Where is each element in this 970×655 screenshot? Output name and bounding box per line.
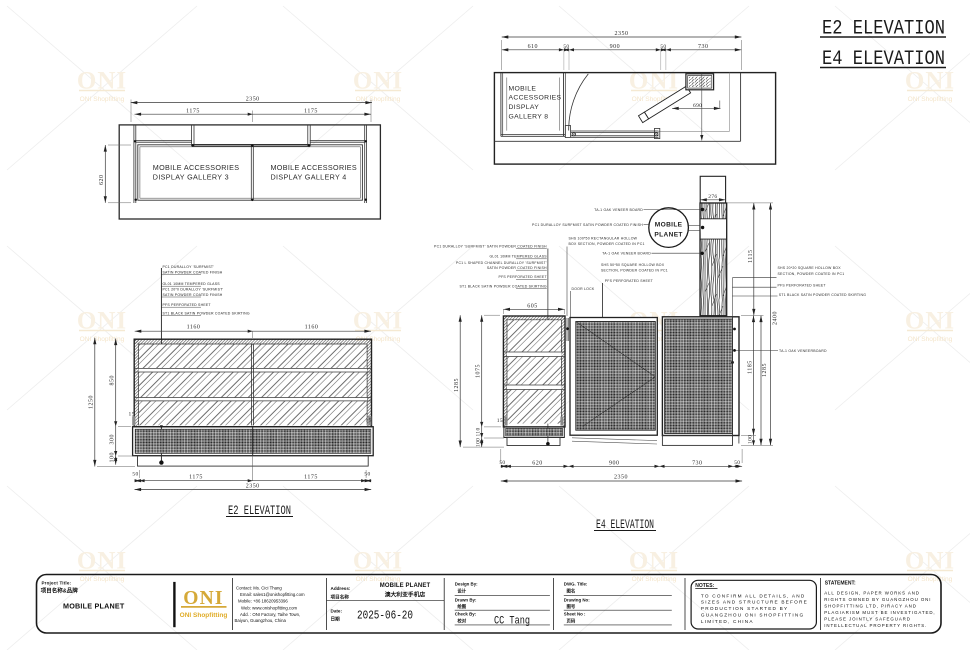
svg-text:DOOR LOCK: DOOR LOCK — [572, 287, 595, 291]
svg-text:100: 100 — [747, 435, 753, 444]
svg-text:2350: 2350 — [614, 475, 628, 481]
svg-text:Add. : ONI Factory, Taihe Tow: Add. : ONI Factory, Taihe Town, — [240, 612, 300, 617]
svg-text:15: 15 — [129, 412, 135, 418]
svg-text:ST1 BLACK SATIN POWDER COATED: ST1 BLACK SATIN POWDER COATED SKIRTING — [459, 285, 546, 289]
svg-text:620: 620 — [99, 175, 105, 185]
svg-text:605: 605 — [527, 303, 537, 309]
svg-text:LIMITED, CHINA: LIMITED, CHINA — [701, 619, 754, 624]
svg-text:TO CONFIRM ALL DETAILS, AND: TO CONFIRM ALL DETAILS, AND — [701, 593, 806, 598]
svg-text:GALLERY 8: GALLERY 8 — [509, 114, 549, 121]
svg-text:PFS PERFORATED SHEET: PFS PERFORATED SHEET — [499, 275, 548, 279]
svg-text:E4 ELEVATION: E4 ELEVATION — [596, 517, 654, 532]
svg-text:ONI Shopfitting: ONI Shopfitting — [908, 336, 953, 343]
svg-text:NOTES:: NOTES: — [695, 583, 714, 589]
svg-text:校对: 校对 — [457, 617, 466, 624]
svg-text:1115: 1115 — [748, 250, 754, 263]
svg-text:276: 276 — [708, 194, 717, 200]
svg-text:Drawing No:: Drawing No: — [564, 598, 590, 603]
svg-text:ONI Shopfitting: ONI Shopfitting — [632, 576, 677, 583]
svg-text:50: 50 — [364, 472, 370, 478]
svg-text:ONI Shopfitting: ONI Shopfitting — [80, 576, 125, 583]
svg-text:RIGHTS OWNED BY GUANGZHOU ONI: RIGHTS OWNED BY GUANGZHOU ONI — [824, 597, 931, 602]
svg-text:Design By:: Design By: — [455, 581, 478, 586]
svg-text:SHS 20*20 SQUARE HOLLOW BOX: SHS 20*20 SQUARE HOLLOW BOX — [778, 266, 842, 270]
svg-text:页码: 页码 — [567, 617, 576, 624]
svg-text:PFS PERFORATED SHEET: PFS PERFORATED SHEET — [605, 279, 654, 283]
svg-text:BOX SECTION, POWDER COATED IN: BOX SECTION, POWDER COATED IN PC1 — [569, 242, 645, 246]
svg-text:1175: 1175 — [304, 475, 318, 481]
svg-text:Mobile: +86 18620953396: Mobile: +86 18620953396 — [238, 599, 288, 604]
svg-text:730: 730 — [698, 44, 708, 50]
svg-text:50: 50 — [734, 460, 740, 466]
svg-text:绘图: 绘图 — [457, 603, 466, 610]
svg-text:GL01 10MM TEMPERED GLASS: GL01 10MM TEMPERED GLASS — [489, 255, 547, 259]
svg-text:300: 300 — [110, 434, 116, 444]
svg-text:Address:: Address: — [331, 586, 351, 591]
svg-text:Sheet No :: Sheet No : — [564, 612, 586, 617]
svg-text:1160: 1160 — [187, 325, 201, 331]
svg-text:日期: 日期 — [331, 616, 341, 623]
svg-text:50: 50 — [499, 460, 505, 466]
svg-text:50: 50 — [563, 44, 569, 50]
svg-text:SHS 50*50 SQUARE HOLLOW BOX: SHS 50*50 SQUARE HOLLOW BOX — [601, 263, 665, 267]
svg-text:1285: 1285 — [454, 378, 460, 392]
svg-text:PLAGIARISM MUST BE INVESTIGATE: PLAGIARISM MUST BE INVESTIGATED, — [824, 610, 935, 615]
svg-text:ONI Shopfitting: ONI Shopfitting — [908, 96, 953, 103]
svg-text:50: 50 — [132, 472, 138, 478]
svg-text:Date:: Date: — [331, 609, 343, 614]
svg-text:15: 15 — [497, 418, 503, 424]
svg-text:ONI Shopfitting: ONI Shopfitting — [908, 576, 953, 583]
svg-text:PFS PERFORATED SHEET: PFS PERFORATED SHEET — [778, 284, 827, 288]
svg-text:ACCESSORIES: ACCESSORIES — [509, 95, 562, 102]
svg-text:15: 15 — [366, 418, 372, 424]
svg-text:2350: 2350 — [246, 97, 260, 103]
svg-text:MOBILE: MOBILE — [509, 85, 537, 92]
svg-text:图名: 图名 — [567, 588, 576, 595]
svg-text:100: 100 — [476, 438, 482, 447]
svg-text:SECTION, POWDER COATED IN PC1: SECTION, POWDER COATED IN PC1 — [601, 269, 668, 273]
svg-text:Project Title:: Project Title: — [42, 581, 72, 586]
svg-text:STATEMENT:: STATEMENT: — [825, 580, 856, 586]
svg-text:SHS 100*50 RECTANGULAR HOLLOW: SHS 100*50 RECTANGULAR HOLLOW — [569, 237, 638, 241]
svg-text:1175: 1175 — [304, 108, 318, 114]
svg-text:ST1 BLACK SATIN POWDER COATED: ST1 BLACK SATIN POWDER COATED SKIRTING — [779, 293, 866, 297]
svg-text:900: 900 — [609, 460, 619, 466]
svg-text:850: 850 — [110, 375, 116, 385]
svg-text:2350: 2350 — [615, 31, 629, 37]
svg-text:PC1 20*0 DURALLOY 'SURFMIST': PC1 20*0 DURALLOY 'SURFMIST' — [163, 287, 224, 291]
svg-text:E2 ELEVATION: E2 ELEVATION — [228, 503, 291, 518]
svg-text:SATIN POWDER COATED FINISH: SATIN POWDER COATED FINISH — [163, 293, 223, 297]
svg-text:1285: 1285 — [762, 363, 768, 377]
svg-text:ALL DESIGN, PAPER WORKS AND: ALL DESIGN, PAPER WORKS AND — [824, 590, 920, 595]
svg-text:1075: 1075 — [476, 364, 482, 378]
svg-text:Drawn By:: Drawn By: — [455, 598, 477, 603]
svg-text:Email: sales1@onishopfitting.c: Email: sales1@onishopfitting.com — [240, 592, 305, 597]
svg-text:1185: 1185 — [747, 360, 753, 374]
svg-text:620: 620 — [532, 460, 542, 466]
svg-text:Check By:: Check By: — [455, 612, 477, 617]
svg-text:DISPLAY GALLERY 4: DISPLAY GALLERY 4 — [271, 173, 347, 182]
svg-text:730: 730 — [692, 460, 702, 466]
svg-text:MOBILE ACCESSORIES: MOBILE ACCESSORIES — [271, 163, 358, 172]
svg-text:690: 690 — [693, 103, 702, 109]
svg-text:610: 610 — [528, 44, 538, 50]
svg-text:GL01 10MM TEMPERED GLASS: GL01 10MM TEMPERED GLASS — [163, 282, 221, 286]
svg-text:SATIN POWDER COATED FINISH: SATIN POWDER COATED FINISH — [487, 266, 547, 270]
svg-text:Baiyun, Guangzhou, China: Baiyun, Guangzhou, China — [235, 618, 287, 623]
svg-text:TA-1 OAK VENEERBOARD: TA-1 OAK VENEERBOARD — [779, 349, 827, 353]
svg-text:1160: 1160 — [305, 325, 319, 331]
svg-text:项目名称: 项目名称 — [331, 594, 350, 601]
svg-text:PRODUCTION STARTED BY: PRODUCTION STARTED BY — [701, 606, 788, 611]
svg-text:MOBILE: MOBILE — [655, 222, 683, 229]
svg-text:50: 50 — [660, 44, 666, 50]
svg-text:SIZES AND STRUCTURE BEFORE: SIZES AND STRUCTURE BEFORE — [701, 600, 808, 605]
svg-text:100: 100 — [110, 452, 116, 462]
svg-text:1250: 1250 — [89, 395, 95, 409]
svg-text:Contact: Ms. Cici Thang: Contact: Ms. Cici Thang — [236, 586, 282, 591]
svg-text:ST1 BLACK SATIN POWDER COATED: ST1 BLACK SATIN POWDER COATED SKIRTING — [163, 312, 250, 316]
svg-text:1175: 1175 — [186, 108, 200, 114]
svg-text:MOBILE PLANET: MOBILE PLANET — [63, 602, 125, 611]
svg-text:1175: 1175 — [189, 475, 203, 481]
svg-text:GUANGZHOU ONI SHOPFITTING: GUANGZHOU ONI SHOPFITTING — [701, 613, 804, 618]
svg-text:ONI Shopfitting: ONI Shopfitting — [80, 336, 125, 343]
svg-text:SATIN POWDER COATED FINISH: SATIN POWDER COATED FINISH — [163, 271, 223, 275]
svg-text:PC1 DURALLOY 'SURFMIST': PC1 DURALLOY 'SURFMIST' — [163, 265, 215, 269]
svg-text:ONI Shopfitting: ONI Shopfitting — [80, 96, 125, 103]
svg-text:DWG. Title:: DWG. Title: — [564, 581, 588, 586]
svg-text:2350: 2350 — [246, 484, 260, 490]
svg-text:ONI Shopfitting: ONI Shopfitting — [356, 576, 401, 583]
svg-text:SHOPFITTING LTD, PIRACY AND: SHOPFITTING LTD, PIRACY AND — [824, 603, 917, 608]
svg-text:DISPLAY GALLERY 3: DISPLAY GALLERY 3 — [153, 173, 229, 182]
svg-text:PLANET: PLANET — [654, 232, 682, 239]
svg-text:2025-06-20: 2025-06-20 — [357, 610, 413, 623]
svg-text:INTELLECTUAL PROPERTY RIGHTS.: INTELLECTUAL PROPERTY RIGHTS. — [824, 623, 927, 628]
svg-text:ONI: ONI — [183, 588, 223, 609]
svg-text:110: 110 — [476, 427, 482, 436]
svg-text:TA-1 OAK VENEER BOARD: TA-1 OAK VENEER BOARD — [602, 252, 651, 256]
svg-text:TA-1 OAK VENEER BOARD: TA-1 OAK VENEER BOARD — [594, 208, 643, 212]
svg-text:DISPLAY: DISPLAY — [509, 104, 540, 111]
svg-text:2400: 2400 — [772, 311, 778, 325]
svg-text:PFS PERFORATED SHEET: PFS PERFORATED SHEET — [163, 303, 212, 307]
svg-text:PC1 DURALLOY SURFMIST SATIN PO: PC1 DURALLOY SURFMIST SATIN POWDER COATE… — [532, 223, 643, 227]
svg-text:图号: 图号 — [567, 603, 576, 610]
svg-text:MOBILE ACCESSORIES: MOBILE ACCESSORIES — [153, 163, 240, 172]
svg-text:设计: 设计 — [457, 588, 466, 595]
svg-text:ONI Shopfitting: ONI Shopfitting — [180, 612, 228, 619]
svg-text:SECTION, POWDER COATED IN PC1: SECTION, POWDER COATED IN PC1 — [778, 272, 845, 276]
svg-text:MOBILE PLANET: MOBILE PLANET — [380, 583, 431, 589]
svg-text:CC Tang: CC Tang — [494, 616, 530, 628]
svg-text:PC1 L SHAPED CHANNEL DURALLOY: PC1 L SHAPED CHANNEL DURALLOY 'SURFMIST' — [456, 261, 547, 265]
svg-text:PLEASE JOINTLY SAFEGUARD: PLEASE JOINTLY SAFEGUARD — [824, 616, 911, 621]
svg-text:ONI Shopfitting: ONI Shopfitting — [356, 96, 401, 103]
svg-text:PC1 DURALLOY 'SURFMIST' SATIN: PC1 DURALLOY 'SURFMIST' SATIN POWDER COA… — [434, 244, 547, 248]
svg-text:Web: www.onishopfitting.com: Web: www.onishopfitting.com — [241, 605, 297, 610]
svg-text:900: 900 — [610, 44, 620, 50]
